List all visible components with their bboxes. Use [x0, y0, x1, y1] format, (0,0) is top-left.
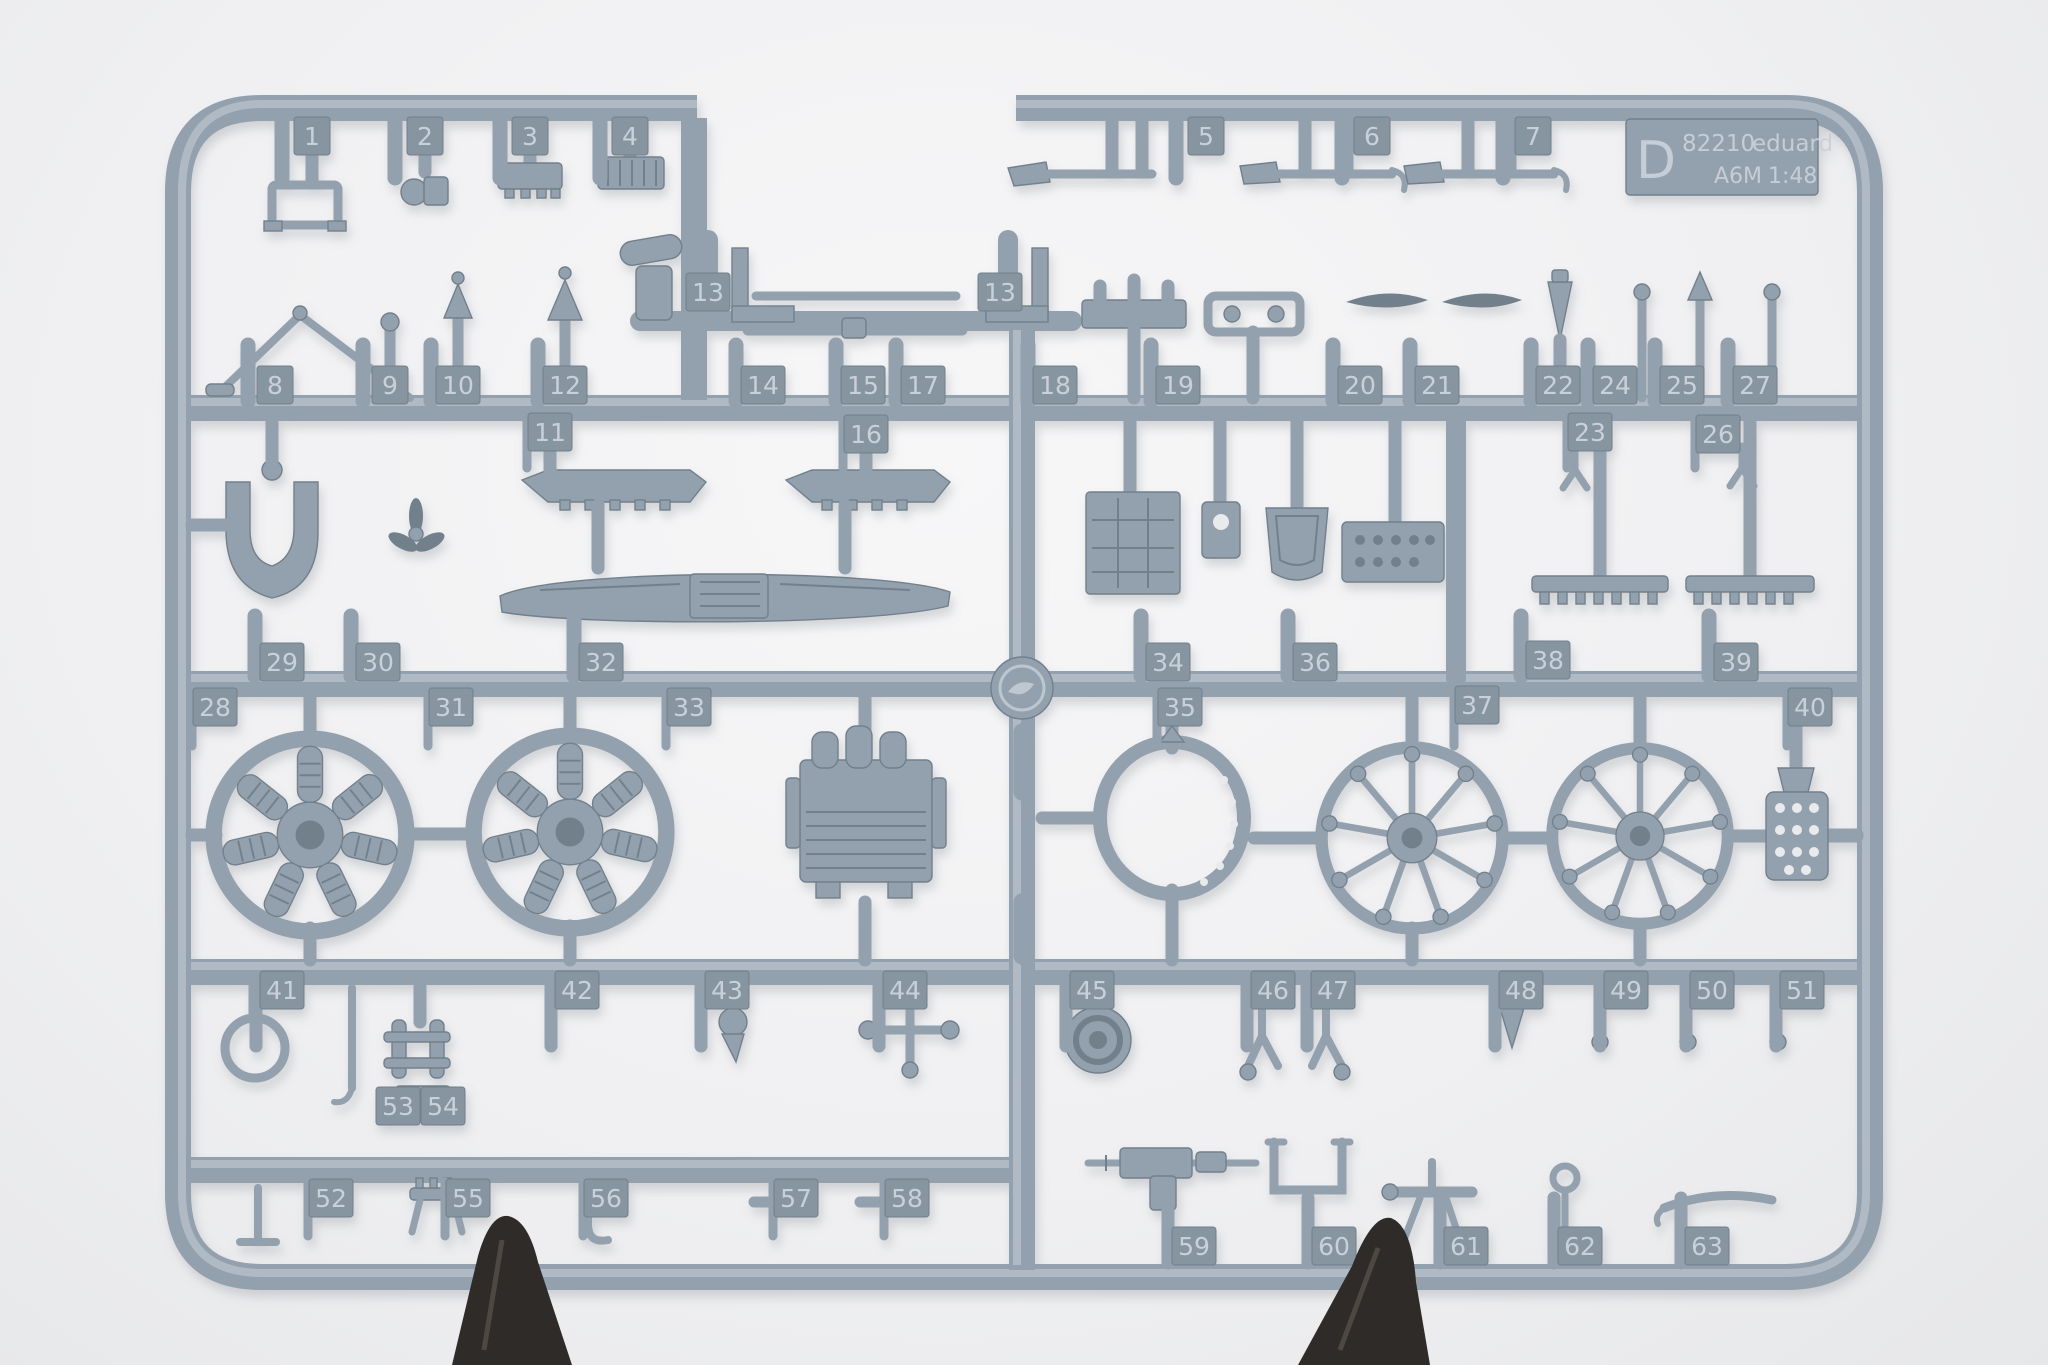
svg-text:3: 3 [522, 122, 538, 151]
svg-text:24: 24 [1599, 371, 1631, 400]
part-number-tag: 19 [1156, 366, 1200, 404]
svg-text:43: 43 [711, 976, 743, 1005]
clamp-tip-left [452, 1216, 572, 1365]
part-number-tag: 38 [1526, 641, 1570, 679]
u-bracket-part [1268, 1142, 1350, 1190]
eduard-logo-medallion [991, 657, 1053, 719]
part-number-tag: 16 [844, 415, 888, 453]
part-number-tag: 5 [1188, 117, 1224, 155]
svg-text:23: 23 [1574, 418, 1606, 447]
part-number-tag: 34 [1146, 643, 1190, 681]
svg-text:28: 28 [199, 693, 231, 722]
svg-text:4: 4 [622, 122, 638, 151]
sprue-label-plate: D 82210 eduard A6M 1:48 [1626, 119, 1833, 195]
svg-text:63: 63 [1691, 1232, 1723, 1261]
part-number-tag: 2 [407, 117, 443, 155]
part-number-tag: 8 [257, 366, 293, 404]
part-number-tag: 55 [446, 1179, 490, 1217]
svg-text:39: 39 [1720, 648, 1752, 677]
sprue-letter: D [1636, 131, 1676, 191]
part-number-tag: 44 [883, 971, 927, 1009]
radial-engine-front-part [474, 697, 667, 960]
svg-text:60: 60 [1318, 1232, 1350, 1261]
actuator-strip-part [1008, 121, 1152, 186]
part-number-tag: 30 [356, 643, 400, 681]
part-number-tag: 17 [901, 366, 945, 404]
rod-part [334, 988, 352, 1102]
instrument-console-part [1342, 421, 1444, 582]
part-number-tag: 54 [421, 1087, 465, 1125]
part-number-tag: 33 [667, 688, 711, 726]
part-number-tag: 49 [1604, 971, 1648, 1009]
cockpit-floor-part [1086, 421, 1180, 594]
svg-text:18: 18 [1039, 371, 1071, 400]
svg-text:14: 14 [747, 371, 779, 400]
part-number-tag: 62 [1558, 1227, 1602, 1265]
part-number-tag: 51 [1780, 971, 1824, 1009]
svg-text:41: 41 [266, 976, 298, 1005]
part-number-tag: 59 [1172, 1227, 1216, 1265]
bulkhead-small-part [1202, 421, 1240, 558]
svg-text:31: 31 [435, 693, 467, 722]
svg-text:20: 20 [1344, 371, 1376, 400]
frame-part [1208, 296, 1300, 398]
svg-text:25: 25 [1666, 371, 1698, 400]
horseshoe-part [192, 422, 318, 598]
part-number-tag: 26 [1696, 415, 1740, 453]
svg-text:11: 11 [534, 418, 566, 447]
part-number-tag: 42 [555, 971, 599, 1009]
part-number-tag: 36 [1293, 643, 1337, 681]
kit-code: 82210 [1682, 131, 1755, 157]
intake-part [618, 233, 683, 320]
svg-text:54: 54 [427, 1092, 459, 1121]
svg-text:22: 22 [1542, 371, 1574, 400]
part-number-tag: 12 [543, 366, 587, 404]
part-number-tag: 35 [1158, 688, 1202, 726]
fuselage-former-part [1042, 697, 1244, 960]
part-number-tag: 56 [584, 1179, 628, 1217]
svg-text:27: 27 [1739, 371, 1771, 400]
svg-text:26: 26 [1702, 420, 1734, 449]
part-number-tag: 25 [1660, 366, 1704, 404]
svg-text:38: 38 [1532, 646, 1564, 675]
part-number-tag: 40 [1788, 688, 1832, 726]
svg-text:9: 9 [382, 371, 398, 400]
wing-spar-part [500, 505, 950, 622]
svg-text:35: 35 [1164, 693, 1196, 722]
svg-text:44: 44 [889, 976, 921, 1005]
part-number-tag: 61 [1444, 1227, 1488, 1265]
svg-text:50: 50 [1696, 976, 1728, 1005]
svg-text:51: 51 [1786, 976, 1818, 1005]
svg-text:34: 34 [1152, 648, 1184, 677]
svg-text:10: 10 [442, 371, 474, 400]
gear-door-strip-part [786, 448, 950, 510]
svg-text:36: 36 [1299, 648, 1331, 677]
part-number-tag: 58 [885, 1179, 929, 1217]
cone-part [1500, 1008, 1524, 1048]
part-number-tag: 1 [294, 117, 330, 155]
l-bracket-part [732, 248, 794, 322]
part-number-tag: 52 [309, 1179, 353, 1217]
part-number-tag: 24 [1593, 366, 1637, 404]
engine-block-part [786, 697, 946, 960]
svg-text:58: 58 [891, 1184, 923, 1213]
svg-text:62: 62 [1564, 1232, 1596, 1261]
part-number-tag: 15 [841, 366, 885, 404]
svg-text:30: 30 [362, 648, 394, 677]
svg-text:47: 47 [1317, 976, 1349, 1005]
part-number-tag: 41 [260, 971, 304, 1009]
svg-text:12: 12 [549, 371, 581, 400]
svg-text:46: 46 [1257, 976, 1289, 1005]
aircraft-model: A6M [1714, 164, 1762, 189]
svg-text:2: 2 [417, 122, 433, 151]
part-number-tag: 47 [1311, 971, 1355, 1009]
brand-name: eduard [1752, 131, 1833, 157]
part-number-tag: 13 [686, 273, 730, 311]
svg-text:33: 33 [673, 693, 705, 722]
svg-text:55: 55 [452, 1184, 484, 1213]
svg-text:13: 13 [984, 278, 1016, 307]
sprue-frame: D 82210 eduard A6M 1:48 1234567131389101… [178, 104, 1870, 1277]
part-number-tag: 22 [1536, 366, 1580, 404]
part-number-tag: 20 [1338, 366, 1382, 404]
part-number-tag: 53 [376, 1087, 420, 1125]
part-number-tag: 21 [1415, 366, 1459, 404]
part-number-tag: 32 [579, 643, 623, 681]
part-number-tag: 48 [1499, 971, 1543, 1009]
part-number-tag: 23 [1568, 413, 1612, 451]
svg-text:61: 61 [1450, 1232, 1482, 1261]
part-number-tag: 29 [260, 643, 304, 681]
svg-text:21: 21 [1421, 371, 1453, 400]
svg-text:42: 42 [561, 976, 593, 1005]
part-number-tag: 13 [978, 273, 1022, 311]
svg-text:49: 49 [1610, 976, 1642, 1005]
seat-part [1266, 421, 1328, 580]
svg-text:45: 45 [1076, 976, 1108, 1005]
svg-text:40: 40 [1794, 693, 1826, 722]
svg-text:29: 29 [266, 648, 298, 677]
part-number-tag: 45 [1070, 971, 1114, 1009]
part-number-tag: 60 [1312, 1227, 1356, 1265]
part-number-tag: 43 [705, 971, 749, 1009]
part-number-tag: 9 [372, 366, 408, 404]
sprue-photo: D 82210 eduard A6M 1:48 1234567131389101… [0, 0, 2048, 1365]
small-prop-part [386, 498, 448, 556]
curved-strip-part [1657, 1196, 1772, 1225]
svg-text:1: 1 [304, 122, 320, 151]
part-number-tag: 3 [512, 117, 548, 155]
svg-text:8: 8 [267, 371, 283, 400]
airfoil-part [1346, 293, 1522, 307]
part-number-tag: 18 [1033, 366, 1077, 404]
svg-text:19: 19 [1162, 371, 1194, 400]
part-number-tag: 37 [1455, 686, 1499, 724]
t-pin-part [240, 1188, 276, 1242]
part-number-tag: 57 [774, 1179, 818, 1217]
svg-text:7: 7 [1525, 122, 1541, 151]
part-number-tag: 31 [429, 688, 473, 726]
svg-text:48: 48 [1505, 976, 1537, 1005]
svg-text:13: 13 [692, 278, 724, 307]
part-number-tag: 10 [436, 366, 480, 404]
svg-text:57: 57 [780, 1184, 812, 1213]
svg-text:15: 15 [847, 371, 879, 400]
svg-text:16: 16 [850, 420, 882, 449]
svg-text:37: 37 [1461, 691, 1493, 720]
part-number-tag: 6 [1354, 117, 1390, 155]
svg-text:6: 6 [1364, 122, 1380, 151]
part-number-tag: 46 [1251, 971, 1295, 1009]
part-number-tag: 39 [1714, 643, 1758, 681]
part-number-tag: 27 [1733, 366, 1777, 404]
svg-text:53: 53 [382, 1092, 414, 1121]
part-number-tag: 28 [193, 688, 237, 726]
svg-text:59: 59 [1178, 1232, 1210, 1261]
part-number-tag: 4 [612, 117, 648, 155]
gear-door-strip-part [522, 445, 706, 510]
svg-text:56: 56 [590, 1184, 622, 1213]
svg-text:17: 17 [907, 371, 939, 400]
radial-engine-rear-part [1254, 697, 1548, 960]
part-number-tag: 63 [1685, 1227, 1729, 1265]
part-number-tag: 11 [528, 413, 572, 451]
part-number-tag: 7 [1515, 117, 1551, 155]
kit-scale: 1:48 [1768, 164, 1817, 189]
gear-leg-part [1240, 1000, 1350, 1080]
part-number-tag: 14 [741, 366, 785, 404]
svg-text:52: 52 [315, 1184, 347, 1213]
governor-part [719, 1008, 747, 1062]
svg-text:5: 5 [1198, 122, 1214, 151]
svg-text:32: 32 [585, 648, 617, 677]
part-number-tag: 50 [1690, 971, 1734, 1009]
